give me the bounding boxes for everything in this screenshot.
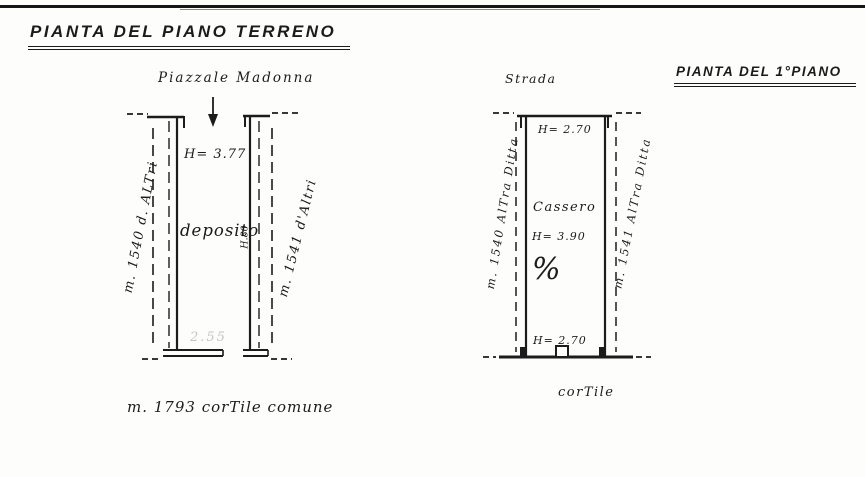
ground-door-height-note: H.80 xyxy=(240,225,251,248)
first-ceiling-height-bottom: H= 2.70 xyxy=(533,334,587,347)
ground-top-area-label: Piazzale Madonna xyxy=(158,70,314,86)
ground-faint-measure: 2.55 xyxy=(190,330,227,345)
ground-ceiling-height: H= 3.77 xyxy=(184,147,246,162)
first-top-area-label: Strada xyxy=(505,71,556,86)
first-ceiling-height-top: H= 2.70 xyxy=(538,123,592,136)
pilaster-foot-right xyxy=(599,347,606,357)
first-courtyard-label: corTile xyxy=(558,385,615,400)
entrance-arrow-head-icon xyxy=(208,114,218,127)
first-ceiling-height-mid: H= 3.90 xyxy=(532,230,586,243)
first-slope-symbol: % xyxy=(532,252,561,287)
door-opening xyxy=(556,346,568,357)
scanned-floor-plan-page: PIANTA DEL PIANO TERRENO PIANTA DEL 1°PI… xyxy=(0,0,865,477)
ground-courtyard-label: m. 1793 corTile comune xyxy=(127,398,333,416)
pilaster-foot-left xyxy=(520,347,527,357)
first-room-name: Cassero xyxy=(533,200,596,215)
